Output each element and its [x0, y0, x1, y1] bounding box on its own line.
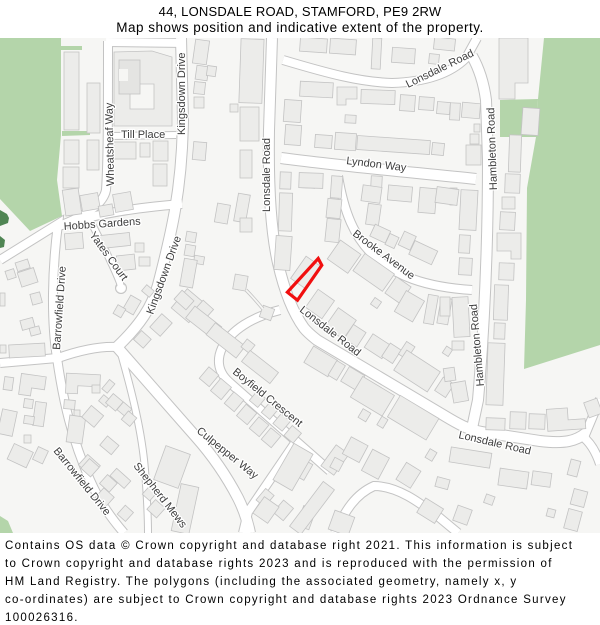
svg-text:Till Place: Till Place — [121, 129, 165, 141]
svg-text:Wheatsheaf Way: Wheatsheaf Way — [104, 102, 117, 186]
svg-text:Kingsdown Drive: Kingsdown Drive — [176, 52, 188, 135]
svg-text:Lonsdale Road: Lonsdale Road — [261, 138, 273, 212]
